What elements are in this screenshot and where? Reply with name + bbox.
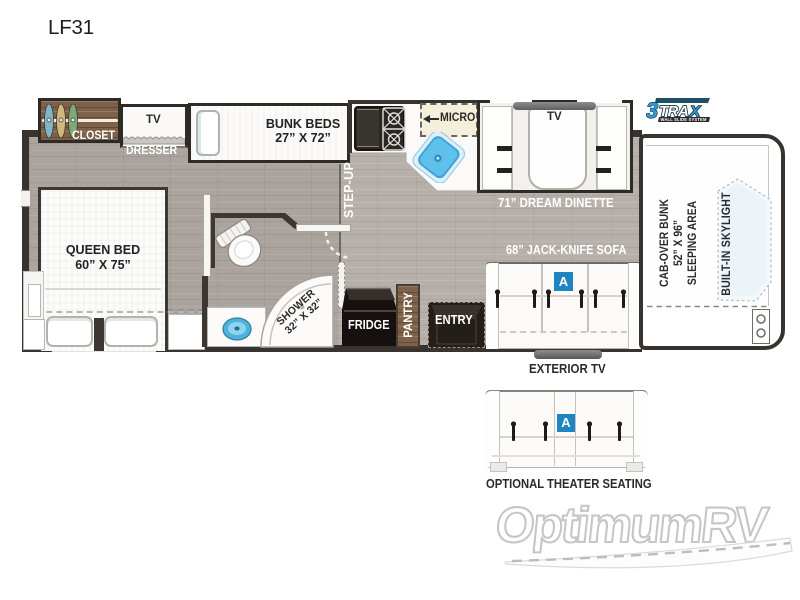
- svg-text:3: 3: [646, 98, 658, 123]
- svg-text:WALL SLIDE SYSTEM: WALL SLIDE SYSTEM: [661, 117, 707, 122]
